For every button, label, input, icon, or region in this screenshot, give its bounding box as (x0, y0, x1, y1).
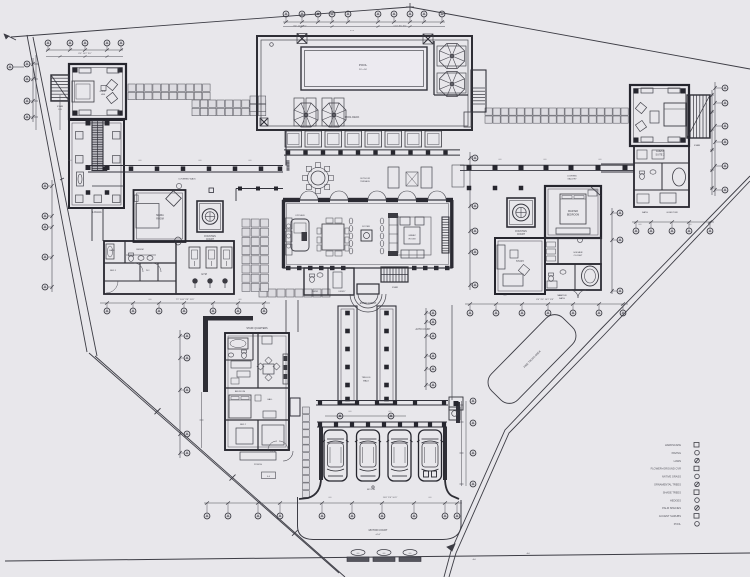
svg-text:GUEST BR: GUEST BR (666, 212, 678, 214)
svg-text:0-0: 0-0 (689, 224, 692, 226)
svg-text:FOUNTAIN: FOUNTAIN (515, 230, 527, 233)
svg-text:AUTO COURT: AUTO COURT (415, 328, 431, 331)
svg-text:TRELLIS: TRELLIS (362, 377, 371, 379)
svg-text:0-0: 0-0 (357, 553, 360, 555)
svg-text:HEDGES: HEDGES (670, 498, 681, 502)
svg-text:0-0: 0-0 (199, 160, 202, 162)
svg-text:ENTRY COURT: ENTRY COURT (360, 303, 377, 305)
svg-text:0-0: 0-0 (599, 159, 602, 161)
svg-text:HSE: HSE (101, 94, 106, 96)
svg-text:0-0: 0-0 (149, 299, 152, 301)
svg-text:ORNAMENTAL TREES: ORNAMENTAL TREES (654, 483, 681, 487)
svg-text:ENTRY: ENTRY (364, 289, 372, 291)
svg-text:0-0: 0-0 (139, 160, 142, 162)
svg-text:W.C.: W.C. (146, 270, 151, 272)
svg-text:FOUNTAIN: FOUNTAIN (204, 235, 216, 238)
svg-text:GYM: GYM (201, 273, 206, 276)
svg-text:FOYER: FOYER (362, 226, 370, 228)
svg-text:BEDRM: BEDRM (136, 249, 144, 251)
svg-text:BATH: BATH (642, 211, 648, 214)
svg-text:BATH: BATH (559, 297, 565, 300)
svg-text:BEDROOM: BEDROOM (235, 391, 246, 393)
svg-text:GUEST: GUEST (100, 91, 108, 93)
svg-text:0-0: 0-0 (299, 146, 302, 148)
svg-text:ROOM: ROOM (409, 239, 416, 241)
svg-text:TERRACE: TERRACE (360, 180, 370, 183)
svg-text:0-0: 0-0 (544, 159, 547, 161)
svg-text:PAVING: PAVING (672, 451, 681, 455)
svg-text:ROOM: ROOM (156, 218, 163, 221)
svg-text:0-0: 0-0 (389, 411, 392, 413)
svg-text:11'0" 8'6" 9'0": 11'0" 8'6" 9'0" (393, 26, 406, 28)
svg-text:0-0: 0-0 (383, 553, 386, 555)
svg-text:GALLERY: GALLERY (567, 178, 577, 181)
svg-text:0-0: 0-0 (419, 146, 422, 148)
svg-text:GREAT: GREAT (408, 234, 416, 237)
svg-text:0-0: 0-0 (359, 146, 362, 148)
svg-text:OUTDOOR: OUTDOOR (360, 178, 371, 180)
svg-text:COVERED WALK: COVERED WALK (178, 178, 196, 181)
svg-text:0-0: 0-0 (239, 299, 242, 301)
svg-text:MOTOR: MOTOR (367, 489, 376, 491)
svg-text:0-0: 0-0 (504, 295, 507, 297)
svg-text:LNDRY: LNDRY (338, 291, 346, 293)
svg-text:BEDROOM: BEDROOM (567, 214, 579, 217)
svg-text:9'0" 12'4" 7'0": 9'0" 12'4" 7'0" (293, 26, 307, 28)
svg-text:BED 3: BED 3 (110, 270, 117, 272)
svg-text:0-0: 0-0 (409, 553, 412, 555)
svg-text:HARDSCAPE: HARDSCAPE (665, 443, 681, 447)
svg-text:0-0: 0-0 (329, 497, 332, 499)
svg-text:POOL: POOL (674, 522, 682, 526)
svg-text:0-0: 0-0 (559, 295, 562, 297)
svg-text:7'2" 10'0" 9'8" 11'0": 7'2" 10'0" 9'8" 11'0" (176, 299, 195, 301)
svg-text:+0'-0": +0'-0" (375, 534, 381, 536)
svg-text:POOL: POOL (359, 63, 368, 67)
svg-text:PWDR: PWDR (312, 291, 319, 293)
svg-text:BATH: BATH (109, 249, 115, 252)
svg-text:0-0: 0-0 (499, 159, 502, 161)
svg-text:HALL: HALL (267, 398, 273, 401)
svg-text:SHADE TREES: SHADE TREES (663, 490, 682, 494)
svg-text:POOL DECK: POOL DECK (345, 116, 360, 119)
svg-text:PORCH: PORCH (254, 464, 262, 466)
svg-text:STUDY: STUDY (516, 260, 525, 263)
svg-text:MOTOR COURT: MOTOR COURT (369, 529, 388, 532)
svg-text:10'0" 9'4" 10'0": 10'0" 9'4" 10'0" (383, 497, 398, 499)
svg-text:STAIR: STAIR (694, 144, 701, 147)
svg-text:STAIR: STAIR (392, 286, 398, 289)
svg-text:BED 2: BED 2 (240, 424, 247, 426)
svg-text:o o o: o o o (350, 30, 354, 32)
svg-text:8'0" 14'2" 9'0": 8'0" 14'2" 9'0" (78, 53, 92, 55)
svg-text:COVERED: COVERED (567, 176, 577, 178)
svg-text:HIS/HER: HIS/HER (574, 252, 583, 254)
svg-text:COURT: COURT (517, 234, 526, 236)
svg-text:WALK: WALK (363, 380, 370, 383)
svg-text:LAWN: LAWN (674, 459, 682, 463)
svg-text:0-0: 0-0 (249, 160, 252, 162)
svg-text:PALM SPECIES: PALM SPECIES (662, 506, 681, 510)
svg-text:8'0" 9'6" 10'2" 8'8": 8'0" 9'6" 10'2" 8'8" (536, 299, 554, 301)
svg-text:NATIVE GRASS: NATIVE GRASS (662, 475, 681, 479)
svg-text:CLOSET: CLOSET (574, 255, 583, 257)
svg-text:STAFF QUARTERS: STAFF QUARTERS (246, 327, 268, 330)
svg-text:0-0: 0-0 (639, 224, 642, 226)
svg-text:20' x 50': 20' x 50' (359, 69, 368, 71)
svg-text:0-0: 0-0 (69, 160, 72, 162)
svg-text:0-0: 0-0 (429, 497, 432, 499)
svg-text:ACCENT SHRUBS: ACCENT SHRUBS (659, 514, 681, 518)
svg-text:FLOWER+GROUND CVR: FLOWER+GROUND CVR (651, 467, 681, 471)
svg-text:0-0: 0-0 (349, 411, 352, 413)
svg-text:LOGGIA: LOGGIA (92, 211, 102, 214)
svg-text:KITCHEN: KITCHEN (295, 215, 305, 217)
